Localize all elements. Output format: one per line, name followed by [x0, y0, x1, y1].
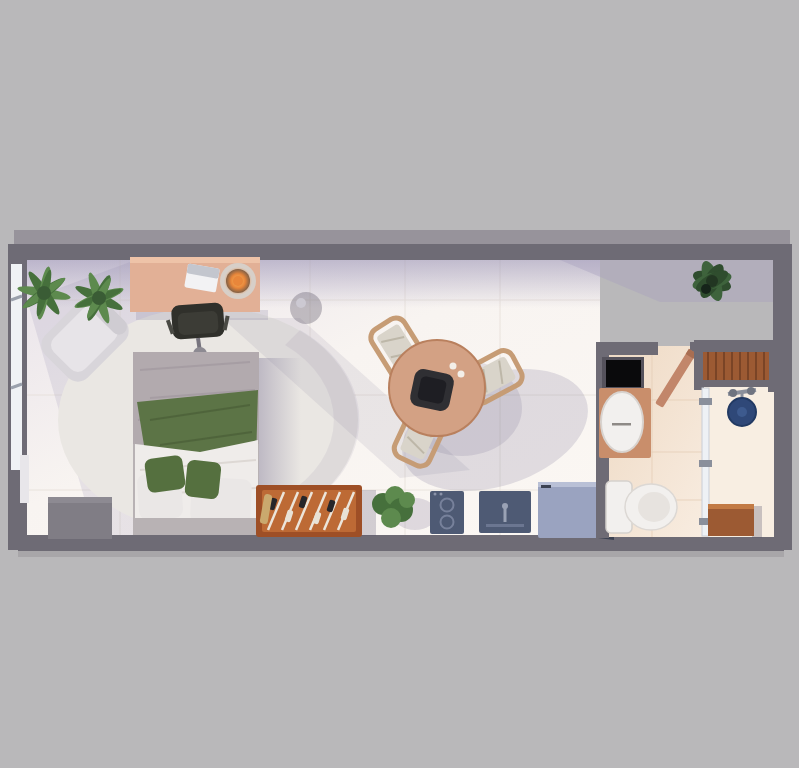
side-stool [290, 292, 322, 324]
table-lamp [220, 263, 256, 299]
kitchen-sink [479, 491, 531, 533]
exterior-shadow-bottom [18, 550, 784, 557]
wall-bottom [18, 535, 784, 551]
wall-top [8, 244, 792, 260]
toilet [606, 481, 677, 533]
bathroom [596, 342, 704, 538]
bed-headboard [133, 518, 259, 535]
shower-area [694, 340, 782, 538]
vanity [599, 388, 651, 458]
bathroom-mirror [602, 357, 644, 390]
pillow-green-left [144, 455, 186, 494]
bathroom-wall-top [596, 342, 658, 355]
shower-wall-left-stub [694, 340, 704, 390]
shower-fixture [728, 387, 756, 426]
shower-wood-cabinet [708, 504, 762, 538]
wall-right [773, 244, 792, 550]
pillow-green-right [184, 459, 222, 499]
storage-cabinet [48, 497, 112, 539]
console-foosball-table [256, 485, 376, 537]
shower-wall-right-stub [768, 340, 782, 392]
floor-plan-svg [0, 0, 799, 768]
floor-plan-render [0, 0, 799, 768]
slatted-wood-shelf [703, 352, 769, 387]
cooktop [430, 491, 464, 534]
